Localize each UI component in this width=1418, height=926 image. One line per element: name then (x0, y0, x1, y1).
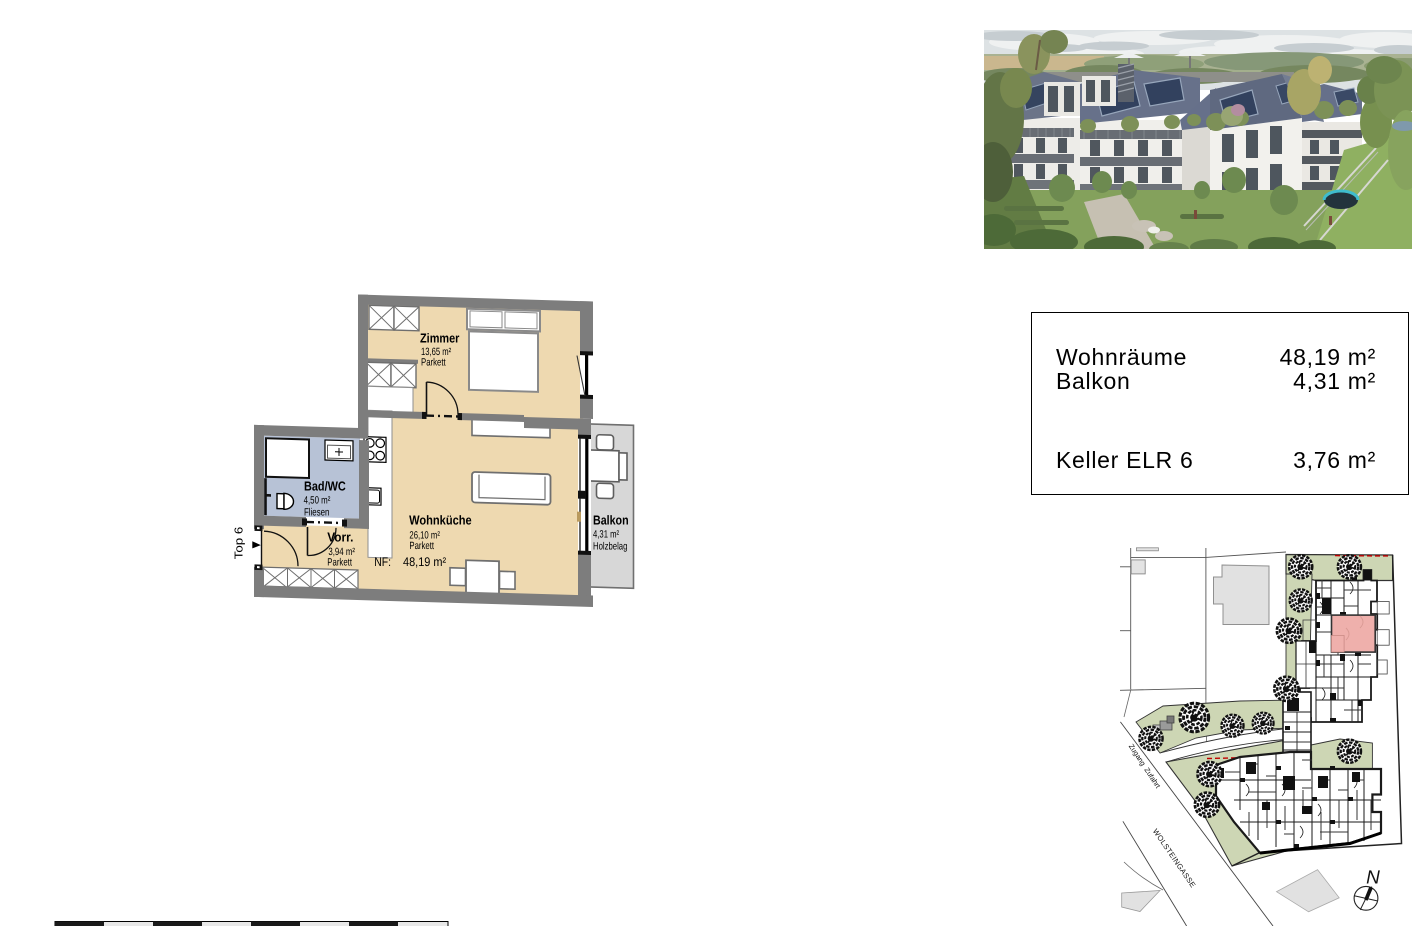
svg-text:Vorr.: Vorr. (327, 529, 353, 544)
svg-text:Fliesen: Fliesen (304, 507, 330, 519)
svg-text:4,31 m²: 4,31 m² (593, 528, 619, 540)
svg-text:WOLSTEINGASSE: WOLSTEINGASSE (1151, 827, 1198, 889)
svg-text:Wohnküche: Wohnküche (409, 512, 472, 527)
svg-text:Top 6: Top 6 (234, 527, 246, 560)
svg-text:N: N (1366, 867, 1380, 888)
svg-text:Parkett: Parkett (327, 556, 352, 568)
svg-text:48,19 m²: 48,19 m² (403, 555, 446, 569)
svg-text:NF:: NF: (374, 555, 391, 569)
svg-text:Bad/WC: Bad/WC (304, 479, 346, 494)
svg-text:Parkett: Parkett (409, 540, 434, 552)
svg-text:Zimmer: Zimmer (420, 330, 459, 345)
svg-text:Holzbelag: Holzbelag (593, 540, 628, 552)
svg-text:Balkon: Balkon (593, 512, 629, 527)
svg-text:4,50 m²: 4,50 m² (304, 494, 331, 506)
svg-text:Parkett: Parkett (421, 357, 446, 369)
